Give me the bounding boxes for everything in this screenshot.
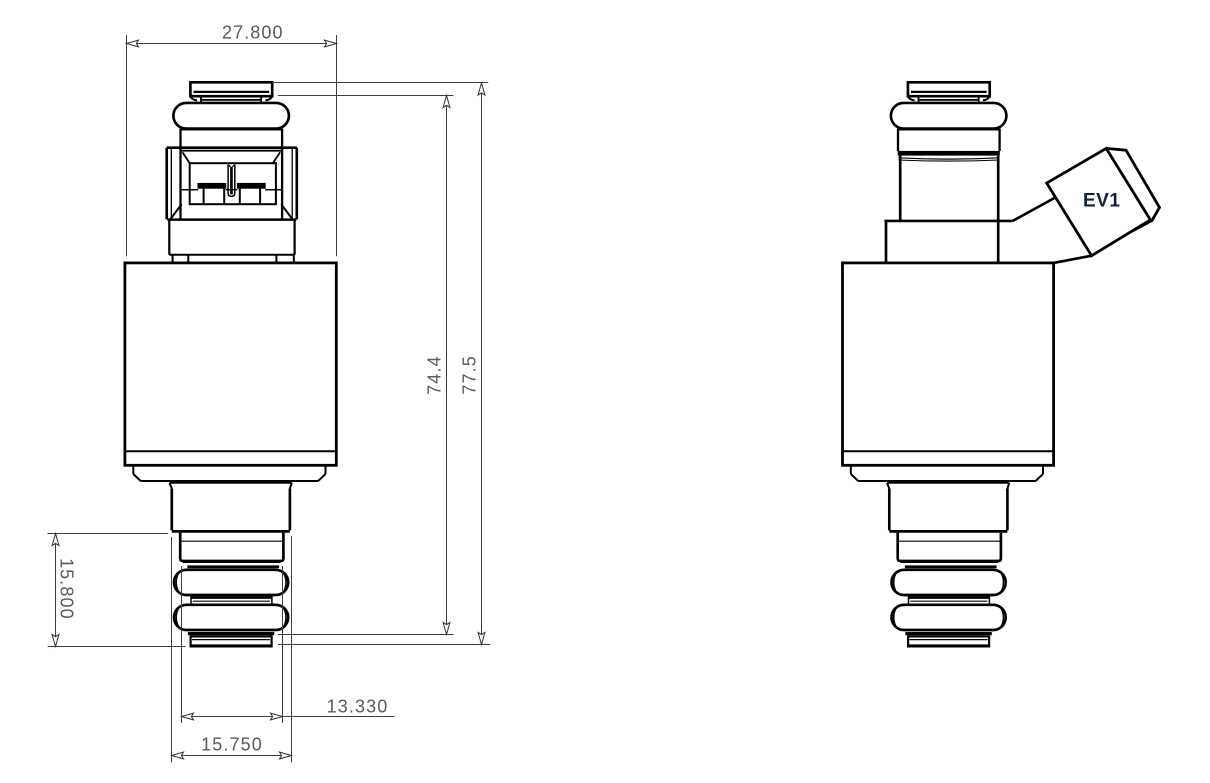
svg-text:27.800: 27.800: [222, 23, 284, 43]
svg-text:74.4: 74.4: [425, 355, 445, 394]
svg-text:77.5: 77.5: [459, 355, 479, 394]
svg-text:EV1: EV1: [1083, 190, 1120, 211]
svg-text:15.750: 15.750: [201, 735, 263, 755]
svg-text:13.330: 13.330: [327, 697, 389, 717]
svg-text:15.800: 15.800: [57, 558, 77, 620]
